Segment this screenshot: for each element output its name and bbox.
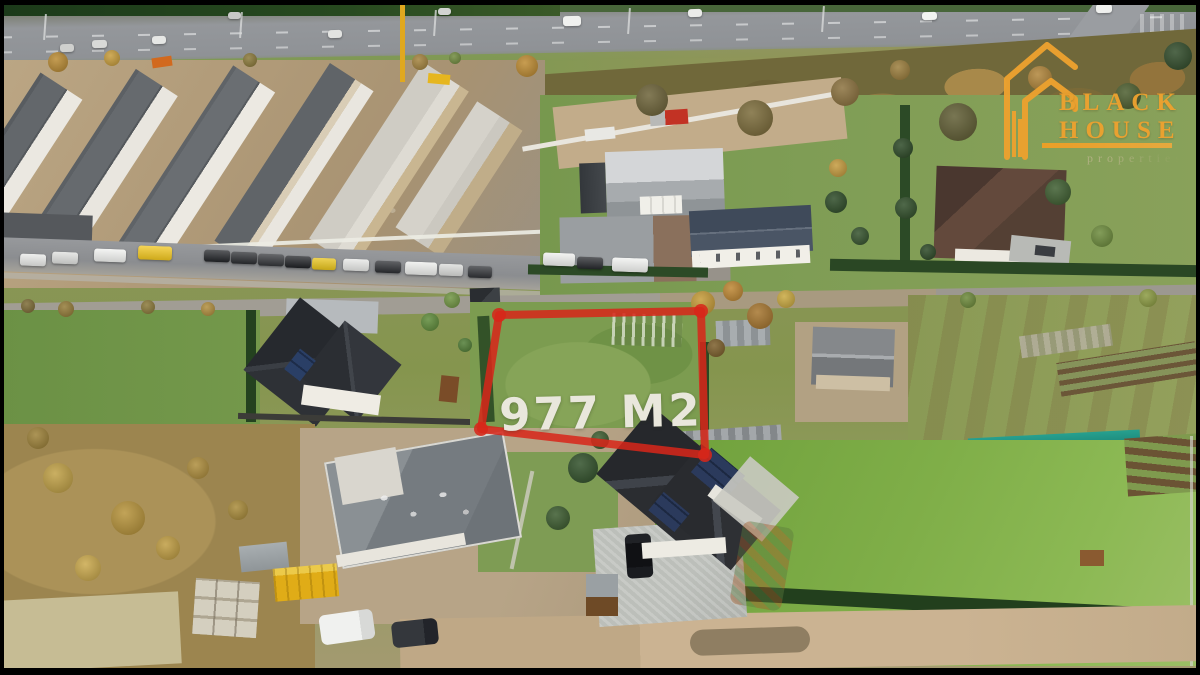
- tree-canopy: [829, 159, 847, 177]
- tree-canopy: [43, 463, 73, 493]
- logo-underline: [1042, 143, 1172, 148]
- tower-crane: [400, 5, 405, 82]
- parked-car: [258, 254, 284, 267]
- tree-canopy: [412, 54, 428, 70]
- parked-car: [138, 245, 172, 260]
- parked-car: [285, 256, 311, 269]
- plot-corner-marker: [694, 304, 708, 318]
- highway-car: [688, 9, 702, 17]
- parked-car: [343, 259, 369, 272]
- concrete-blocks: [192, 578, 260, 638]
- plot-area-label: 977 M2: [495, 383, 706, 441]
- tree-canopy: [201, 302, 215, 316]
- parked-car: [577, 257, 603, 270]
- tree-canopy: [1091, 225, 1113, 247]
- highway-car: [228, 12, 241, 19]
- tree-canopy: [27, 427, 49, 449]
- conifer-hedge-column: [900, 105, 910, 270]
- tree-canopy: [111, 501, 145, 535]
- tree-canopy: [1045, 179, 1071, 205]
- parked-car: [312, 258, 336, 271]
- highway-car: [1096, 5, 1112, 13]
- tree-canopy: [516, 55, 538, 77]
- mobile-crane: [428, 73, 451, 85]
- tree-canopy: [228, 500, 248, 520]
- plot-corner-marker: [698, 448, 712, 462]
- tree-canopy: [421, 313, 439, 331]
- tree-canopy: [939, 103, 977, 141]
- tree-canopy: [449, 52, 461, 64]
- tree-canopy: [546, 506, 570, 530]
- tree-canopy: [21, 299, 35, 313]
- logo-tagline: properties: [1087, 151, 1185, 166]
- tree-canopy: [75, 555, 101, 581]
- old-house-wall: [816, 375, 890, 392]
- parked-car: [543, 252, 575, 266]
- play-structure: [1080, 550, 1104, 566]
- tree-canopy: [58, 301, 74, 317]
- parked-car: [204, 250, 230, 263]
- highway-car: [60, 44, 74, 52]
- workshop-garage-doors: [640, 195, 683, 214]
- tree-canopy: [243, 53, 257, 67]
- tree-canopy: [960, 292, 976, 308]
- letterbox-left: [0, 0, 4, 675]
- letterbox-right: [1196, 0, 1200, 675]
- tree-canopy: [831, 78, 859, 106]
- parked-car: [20, 254, 46, 267]
- tree-canopy: [636, 84, 668, 116]
- tree-canopy: [747, 303, 773, 329]
- tree-canopy: [777, 290, 795, 308]
- hedge-strip-top: [4, 5, 560, 16]
- highway-car: [92, 40, 107, 48]
- plot-corner-marker: [492, 308, 506, 322]
- garden-shed-brown: [586, 574, 618, 616]
- highway-car: [563, 16, 581, 26]
- white-van-yard: [318, 608, 376, 645]
- letterbox-bottom: [0, 668, 1200, 675]
- tree-canopy: [920, 244, 936, 260]
- agency-watermark: BLACK HOUSE properties: [989, 31, 1196, 171]
- photo: 977 M2 BLACK HOUSE properties: [4, 5, 1196, 668]
- dark-car-yard: [391, 618, 439, 649]
- highway-car: [438, 8, 451, 15]
- highway-car: [152, 36, 166, 44]
- tree-canopy: [895, 197, 917, 219]
- logo-word-house: HOUSE: [1059, 117, 1196, 145]
- tree-canopy: [737, 100, 773, 136]
- highway-car: [922, 12, 937, 20]
- parked-car: [468, 266, 492, 279]
- tree-canopy: [1139, 289, 1157, 307]
- mud-puddle: [690, 626, 811, 656]
- parked-car: [231, 252, 257, 265]
- parked-car: [612, 257, 648, 272]
- parked-car: [94, 248, 126, 262]
- tree-canopy: [141, 300, 155, 314]
- plot-outline: [450, 283, 740, 479]
- field-pale-corner: [4, 591, 182, 668]
- tree-canopy: [890, 60, 910, 80]
- dark-garage: [579, 163, 607, 214]
- tree-canopy: [851, 227, 869, 245]
- screenshot-stage: 977 M2 BLACK HOUSE properties: [0, 0, 1200, 675]
- mansion-car: [1035, 245, 1056, 257]
- letterbox-top: [0, 0, 1200, 5]
- logo-word-black: BLACK: [1059, 89, 1196, 117]
- garden-beds-corner: [1124, 434, 1196, 497]
- neighbor-lawn: [4, 310, 260, 435]
- parked-car: [405, 261, 437, 275]
- plot-corner-marker: [474, 422, 488, 436]
- yellow-container: [273, 563, 340, 601]
- parked-car: [375, 261, 401, 274]
- tree-canopy: [48, 52, 68, 72]
- tree-canopy: [104, 50, 120, 66]
- tree-canopy: [893, 138, 913, 158]
- tree-canopy: [825, 191, 847, 213]
- parked-car: [439, 264, 463, 277]
- highway-car: [328, 30, 342, 38]
- tree-canopy: [156, 536, 180, 560]
- tree-canopy: [187, 457, 209, 479]
- parked-car: [52, 252, 78, 265]
